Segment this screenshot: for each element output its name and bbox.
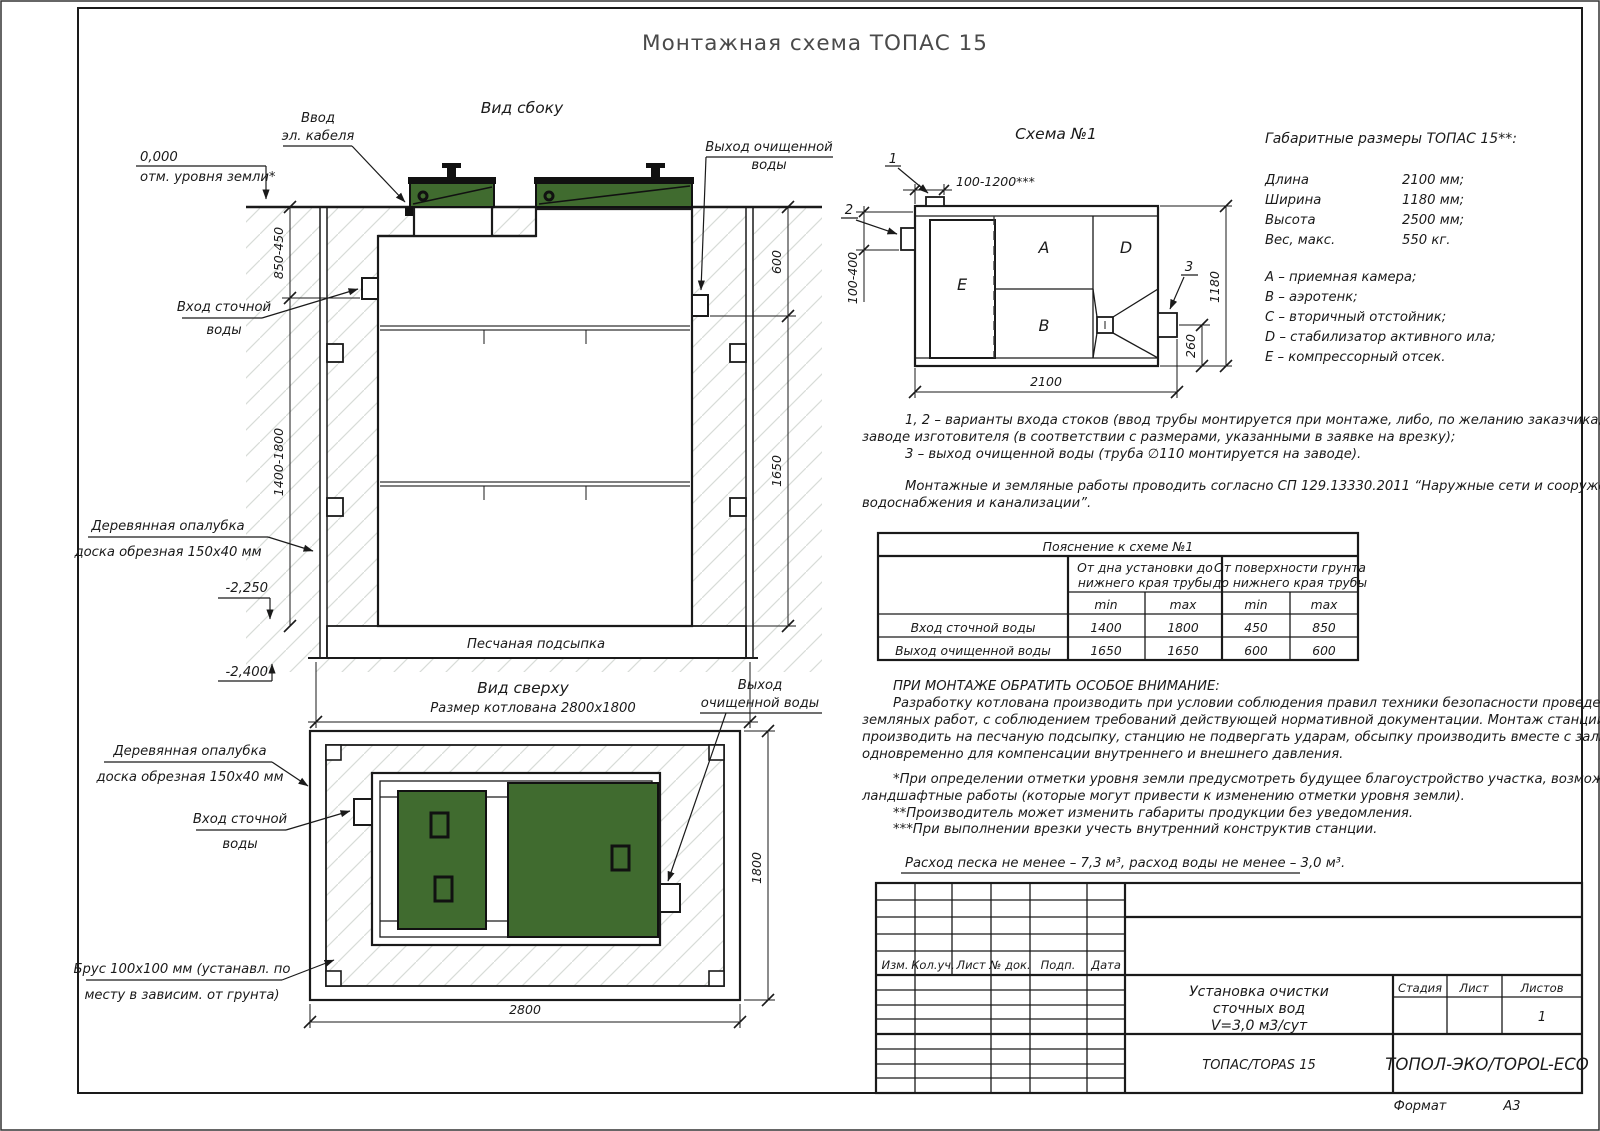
brus-corner [326, 971, 341, 986]
model-label: ТОПАС/TOPAS 15 [1202, 1058, 1315, 1073]
dim-1400-1800: 1400-1800 [271, 428, 286, 496]
table-cell: 1650 [1167, 644, 1198, 658]
pit-size-label: Размер котлована 2800х1800 [430, 701, 636, 716]
stage-label: Стадия [1398, 981, 1442, 995]
attention-p1: одновременно для компенсации внутреннего… [862, 747, 1343, 762]
cable-entry-point [405, 207, 413, 216]
specs-heading: Габаритные размеры ТОПАС 15**: [1265, 131, 1517, 147]
schema-tank [915, 206, 1158, 366]
schema-pipe-3 [1158, 313, 1177, 337]
legend-c: С – вторичный отстойник; [1265, 310, 1446, 325]
dim-2800: 2800 [509, 1002, 541, 1017]
tv-formwork-label-1: Деревянная опалубка [112, 743, 266, 759]
tv-outlet-label-1: Выход [738, 678, 782, 693]
marker-2: 2 [845, 203, 853, 218]
table-cell: 1650 [1090, 644, 1121, 658]
top-view-title: Вид сверху [477, 679, 570, 697]
formwork-board-right [746, 207, 753, 658]
marker-3: 3 [1185, 260, 1193, 275]
col-podp: Подп. [1041, 958, 1076, 972]
inlet-label-1: Вход сточной [177, 300, 272, 315]
spec-label: Высота [1265, 213, 1316, 228]
inlet-label-2: воды [206, 323, 241, 338]
sheets-label: Листов [1520, 981, 1564, 995]
brus-corner [709, 745, 724, 760]
product-line-3: V=3,0 м3/сут [1211, 1018, 1308, 1034]
note-sp-1: Монтажные и земляные работы проводить со… [905, 478, 1600, 494]
formwork-label-2: доска обрезная 150х40 мм [73, 544, 261, 560]
table-g2-1: От поверхности грунта [1214, 561, 1366, 575]
dim-2100: 2100 [1030, 374, 1062, 389]
tv-brus-label-2: месту в зависим. от грунта) [84, 988, 279, 1003]
spec-label: Вес, макс. [1265, 233, 1335, 248]
attention-p1: Разработку котлована производить при усл… [893, 695, 1600, 711]
sheet-label: Лист [1458, 981, 1488, 995]
table-row-label: Выход очищенной воды [895, 644, 1051, 658]
spec-label: Длина [1264, 173, 1309, 188]
clip [327, 344, 343, 362]
dim-600: 600 [769, 250, 784, 274]
consumption-note: Расход песка не менее – 7,3 м³, расход в… [905, 856, 1345, 871]
outlet-label-1: Выход очищенной [705, 140, 833, 155]
side-view-title: Вид сбоку [481, 99, 564, 117]
table-cell: 450 [1244, 621, 1268, 635]
col-izm: Изм. [881, 958, 908, 972]
spec-value: 1180 мм; [1402, 193, 1464, 208]
spec-label: Ширина [1265, 193, 1321, 208]
lid-latch-icon [545, 192, 553, 200]
vent-cap-icon [651, 167, 660, 177]
attention-footnote: **Производитель может изменить габариты … [893, 805, 1413, 821]
compartment-a: A [1038, 238, 1050, 257]
dim-260: 260 [1183, 334, 1198, 358]
dim-1800: 1800 [749, 852, 764, 884]
table-min: min [1244, 598, 1267, 612]
clip [730, 498, 746, 516]
compartment-d: D [1120, 238, 1132, 257]
clip [327, 498, 343, 516]
format-value: А3 [1502, 1099, 1520, 1114]
inlet-pipe-top [354, 799, 372, 825]
elev-2250: -2,250 [225, 581, 268, 596]
compartment-e: E [957, 275, 968, 294]
dim-100-400: 100-400 [845, 252, 860, 304]
cable-label-2: эл. кабеля [282, 128, 355, 144]
dim-850-450: 850-450 [271, 227, 286, 279]
attention-p1: производить на песчаную подсыпку, станци… [862, 729, 1600, 745]
table-row-label: Вход сточной воды [911, 621, 1036, 635]
spec-value: 2100 мм; [1402, 173, 1464, 188]
attention-footnote: ландшафтные работы (которые могут привес… [861, 788, 1465, 804]
title-block: Изм. Кол.уч. Лист № док. Подп. Дата Стад… [876, 883, 1589, 1093]
brus-corner [326, 745, 341, 760]
schema-pipe-1 [926, 197, 944, 206]
clip [730, 344, 746, 362]
table-max: max [1170, 598, 1198, 612]
spec-value: 2500 мм; [1402, 213, 1464, 228]
note-sp-2: водоснабжения и канализации”. [862, 495, 1091, 511]
table-g2-2: до нижнего края трубы [1212, 576, 1367, 590]
product-line-2: сточных вод [1213, 1001, 1305, 1017]
tank-neck [414, 208, 492, 236]
legend-a: А – приемная камера; [1264, 270, 1416, 285]
lid-latch-icon [419, 192, 427, 200]
sand-label: Песчаная подсыпка [467, 637, 605, 652]
outlet-pipe [692, 295, 708, 316]
table-title: Пояснение к схеме №1 [1043, 539, 1194, 554]
dim-1650: 1650 [769, 455, 784, 487]
dim-100-1200: 100-1200*** [956, 174, 1035, 189]
col-data: Дата [1090, 958, 1121, 972]
table-g1-2: нижнего края трубы [1078, 576, 1213, 590]
marker-1: 1 [889, 152, 897, 167]
explanation-table: Пояснение к схеме №1 От дна установки до… [878, 533, 1367, 660]
tv-formwork-label-2: доска обрезная 150х40 мм [95, 769, 283, 785]
legend-d: D – стабилизатор активного ила; [1265, 329, 1496, 345]
schema-title: Схема №1 [1015, 125, 1097, 143]
table-cell: 850 [1312, 621, 1336, 635]
col-ndok: № док. [988, 958, 1030, 972]
tv-brus-label-1: Брус 100х100 мм (устанавл. по [73, 962, 290, 977]
attention-footnote: *При определении отметки уровня земли пр… [893, 771, 1600, 787]
schema-pipe-2 [901, 228, 915, 250]
legend-e: Е – компрессорный отсек. [1265, 350, 1445, 365]
tv-outlet-label-2: очищенной воды [701, 696, 819, 711]
attention-footnote: ***При выполнении врезки учесть внутренн… [893, 822, 1377, 837]
note-line-2: заводе изготовителя (в соответствии с ра… [862, 430, 1455, 445]
tv-inlet-label-2: воды [222, 837, 257, 852]
note-line-3: 3 – выход очищенной воды (труба ∅110 мон… [905, 446, 1361, 462]
col-list: Лист [955, 958, 985, 972]
brus-corner [709, 971, 724, 986]
cable-label-1: Ввод [301, 111, 335, 126]
elev-2400: -2,400 [225, 665, 268, 680]
table-min: min [1094, 598, 1117, 612]
compartment-b: B [1039, 316, 1050, 335]
lid-right-top [508, 783, 658, 937]
company-label: ТОПОЛ-ЭКО/TOPOL-ECO [1385, 1055, 1588, 1074]
drawing-canvas: Монтажная схема ТОПАС 15 Вид сбоку [0, 0, 1600, 1131]
col-koluch: Кол.уч. [911, 958, 954, 972]
tank-body [378, 209, 692, 626]
inlet-pipe [362, 278, 378, 299]
vent-cap-icon [447, 167, 456, 177]
table-g1-1: От дна установки до [1077, 561, 1213, 575]
formwork-board-left [320, 207, 327, 658]
elev-0000: 0,000 [140, 150, 178, 165]
table-max: max [1311, 598, 1339, 612]
tv-inlet-label-1: Вход сточной [193, 812, 288, 827]
legend-b: В – аэротенк; [1265, 290, 1358, 305]
attention-heading: ПРИ МОНТАЖЕ ОБРАТИТЬ ОСОБОЕ ВНИМАНИЕ: [893, 679, 1220, 694]
format-label: Формат [1394, 1099, 1447, 1114]
table-cell: 1800 [1167, 621, 1198, 635]
note-line-1: 1, 2 – варианты входа стоков (ввод трубы… [905, 412, 1600, 428]
sheets-value: 1 [1538, 1010, 1546, 1025]
spec-value: 550 кг. [1402, 233, 1450, 248]
table-cell: 1400 [1090, 621, 1121, 635]
page-title: Монтажная схема ТОПАС 15 [642, 31, 988, 56]
dim-1180: 1180 [1207, 271, 1222, 303]
outlet-label-2: воды [751, 158, 786, 173]
table-cell: 600 [1312, 644, 1336, 658]
elev-note: отм. уровня земли* [140, 170, 276, 185]
table-cell: 600 [1244, 644, 1268, 658]
drawing-page: Монтажная схема ТОПАС 15 Вид сбоку [0, 0, 1600, 1131]
outlet-pipe-top [660, 884, 680, 912]
attention-p1: земляных работ, с соблюдением требований… [862, 712, 1600, 728]
product-line-1: Установка очистки [1189, 984, 1329, 1000]
formwork-label-1: Деревянная опалубка [90, 518, 244, 534]
